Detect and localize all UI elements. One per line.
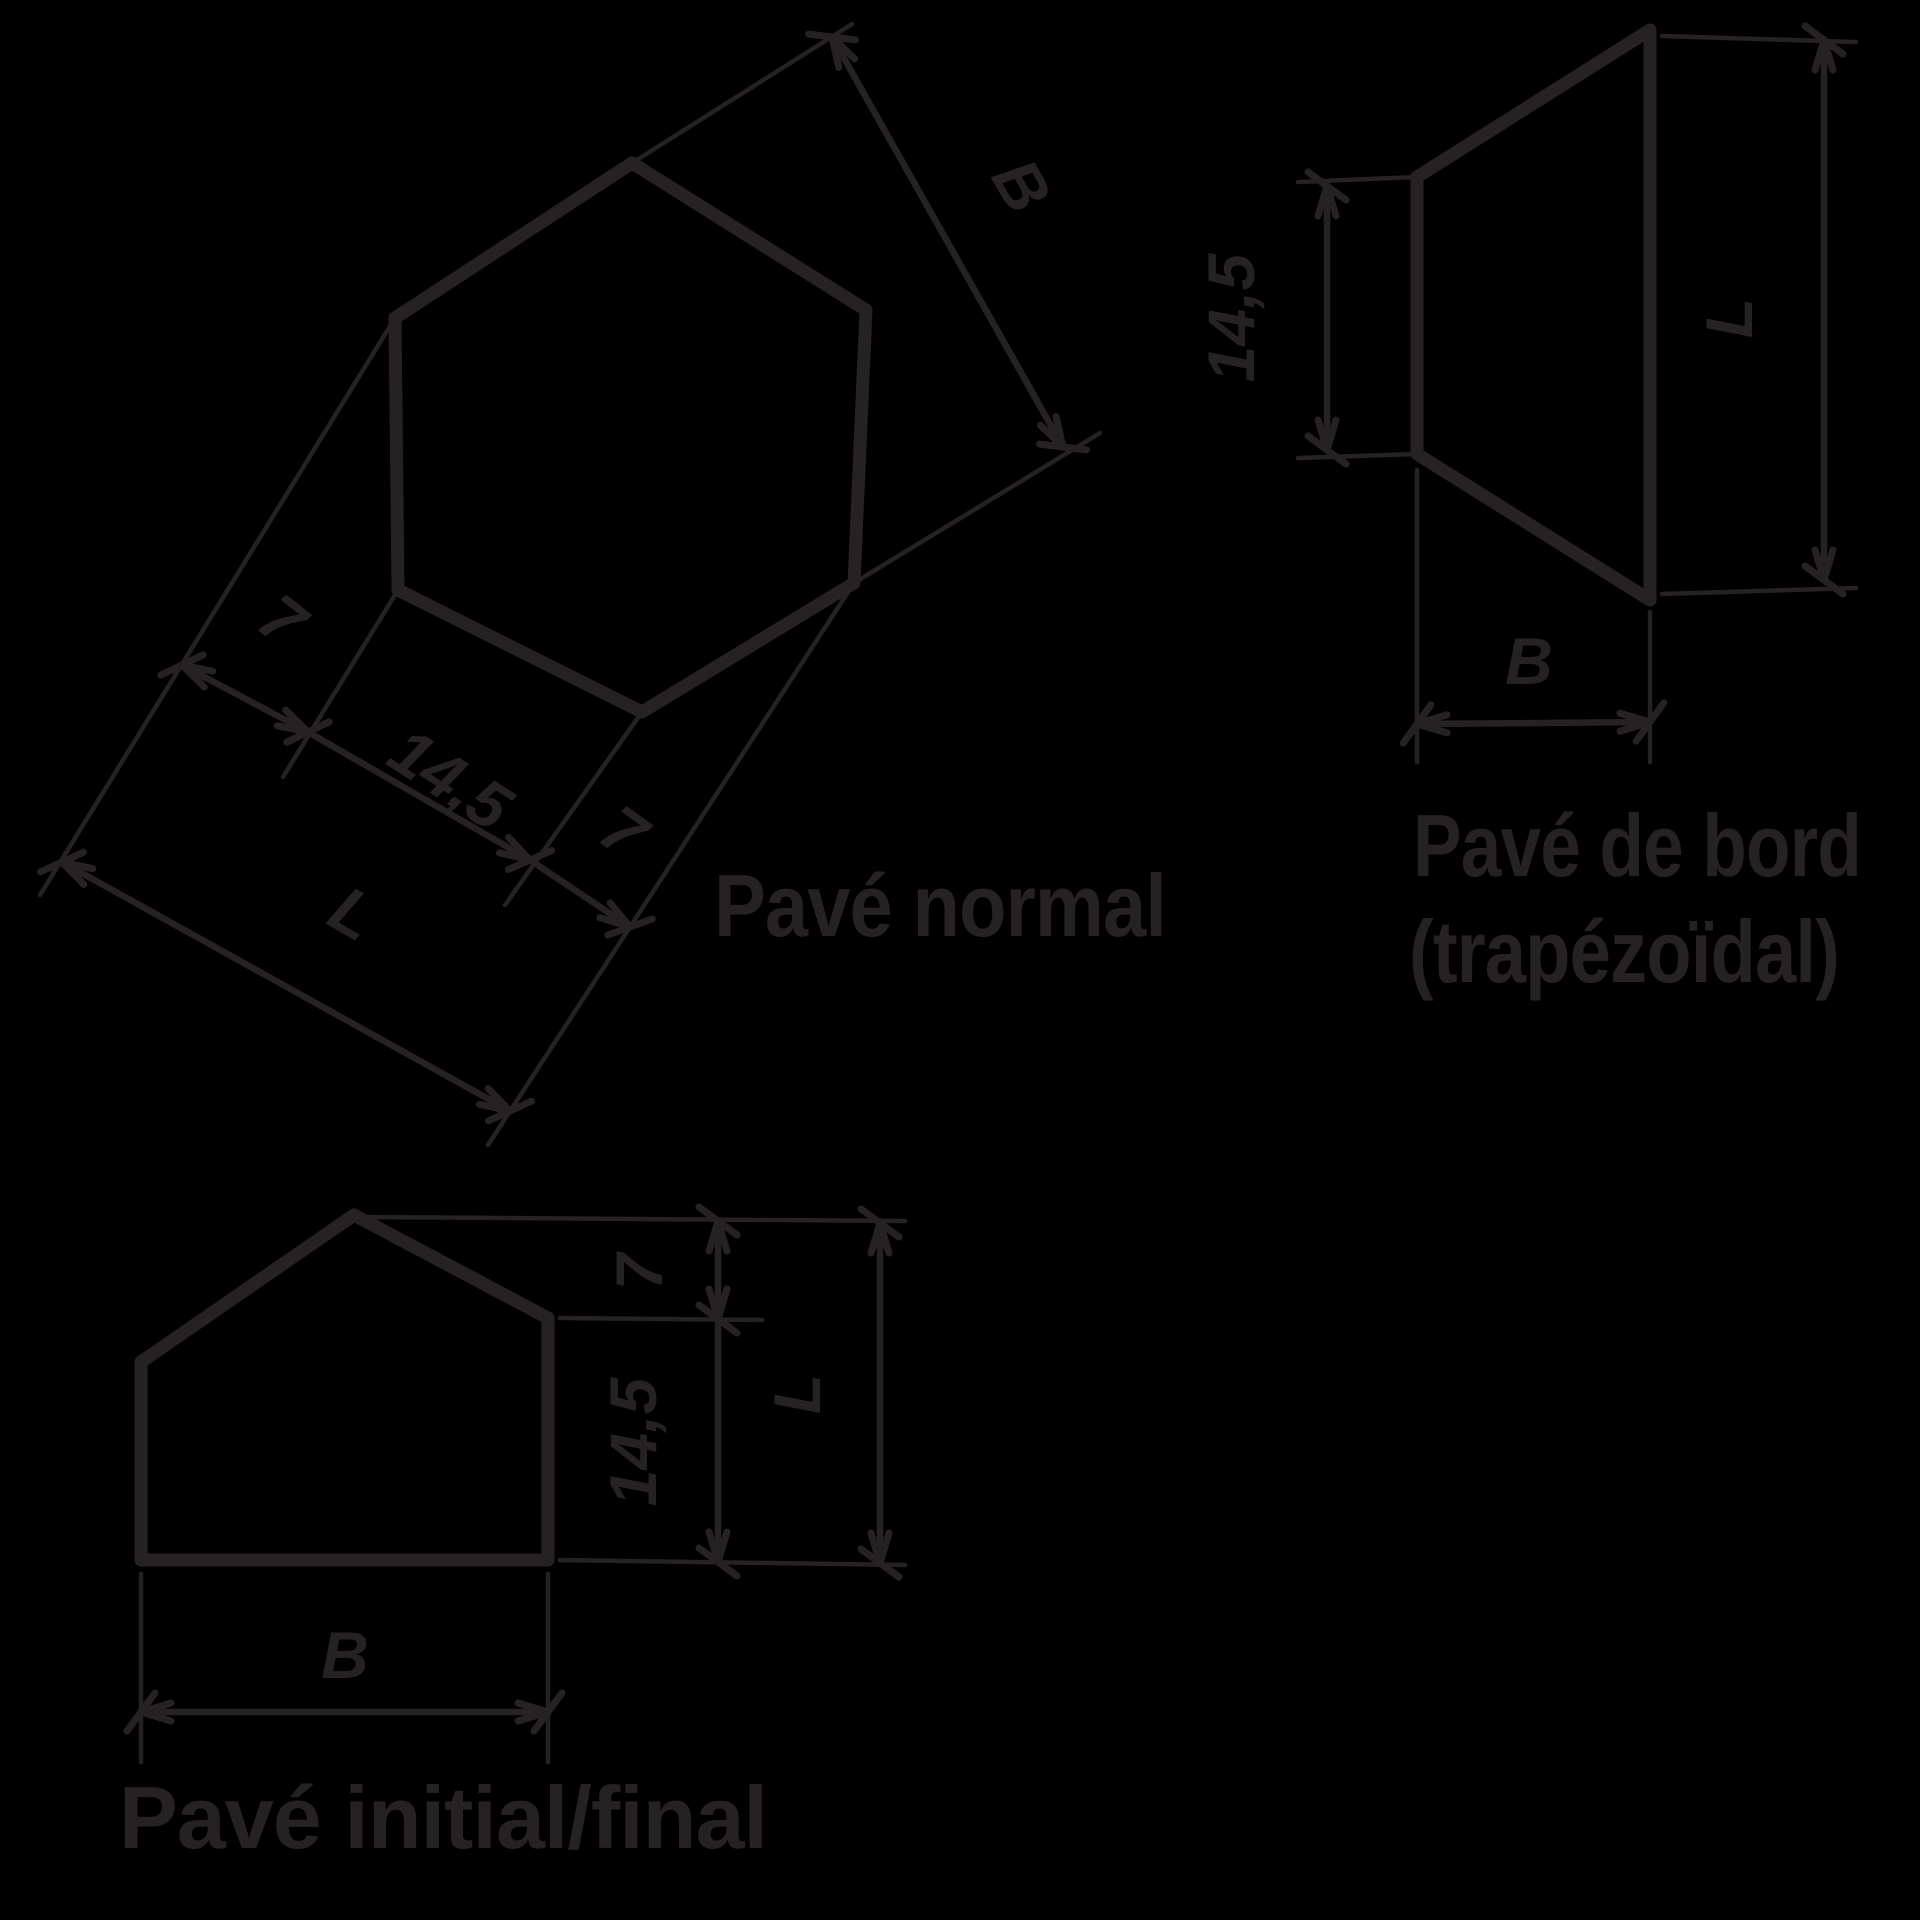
extension-line-trap-bottom-left: [1298, 454, 1417, 458]
dimension-line-l: [62, 862, 510, 1111]
extension-line-top-edge: [632, 24, 852, 163]
hexagon-shape: [395, 163, 866, 712]
caption-pave-initial-final: Pavé initial/final: [119, 1768, 767, 1867]
extension-line-top-right-corner: [560, 1318, 762, 1320]
dim-label-b: B: [1505, 624, 1553, 698]
pentagon-shape: [141, 1215, 548, 1560]
dim-label-7-first: 7: [245, 579, 322, 662]
extension-line-trap-bottom-right: [1662, 588, 1856, 594]
extension-line-trap-top-left: [1298, 177, 1417, 182]
caption-pave-de-bord: Pavé de bord: [1413, 796, 1861, 895]
dim-label-b: B: [321, 1618, 369, 1692]
dimension-line-b: [1417, 722, 1650, 724]
trapezoid-shape: [1417, 30, 1650, 600]
extension-line-peak: [368, 1217, 905, 1221]
technical-drawing: B 7 14,5 7 L Pavé normal 14,5 L: [0, 0, 1920, 1920]
dim-label-14-5: 14,5: [377, 713, 526, 846]
figure-pave-normal: B 7 14,5 7 L Pavé normal: [40, 24, 1166, 1145]
extension-line-lower-right-edge: [854, 433, 1100, 583]
extension-line-a-e: [40, 318, 395, 895]
dim-label-b: B: [978, 146, 1066, 224]
dim-label-7-second: 7: [587, 791, 663, 874]
dimension-line-7-first: [182, 665, 308, 732]
dim-label-14-5: 14,5: [1194, 252, 1268, 382]
dim-label-14-5: 14,5: [596, 1376, 670, 1506]
figure-pave-initial-final: 7 14,5 L B Pavé initial/final: [119, 1215, 905, 1867]
dim-label-l: L: [760, 1374, 834, 1414]
caption-pave-normal: Pavé normal: [714, 856, 1166, 955]
extension-line-bottom: [560, 1560, 905, 1565]
caption-trapezoidal: (trapézoïdal): [1409, 902, 1839, 1001]
dim-label-l: L: [1692, 298, 1766, 338]
dim-label-7: 7: [602, 1250, 676, 1290]
figure-pave-de-bord: 14,5 L B Pavé de bord (trapézoïdal): [1194, 30, 1861, 1001]
dim-label-l: L: [318, 871, 390, 955]
